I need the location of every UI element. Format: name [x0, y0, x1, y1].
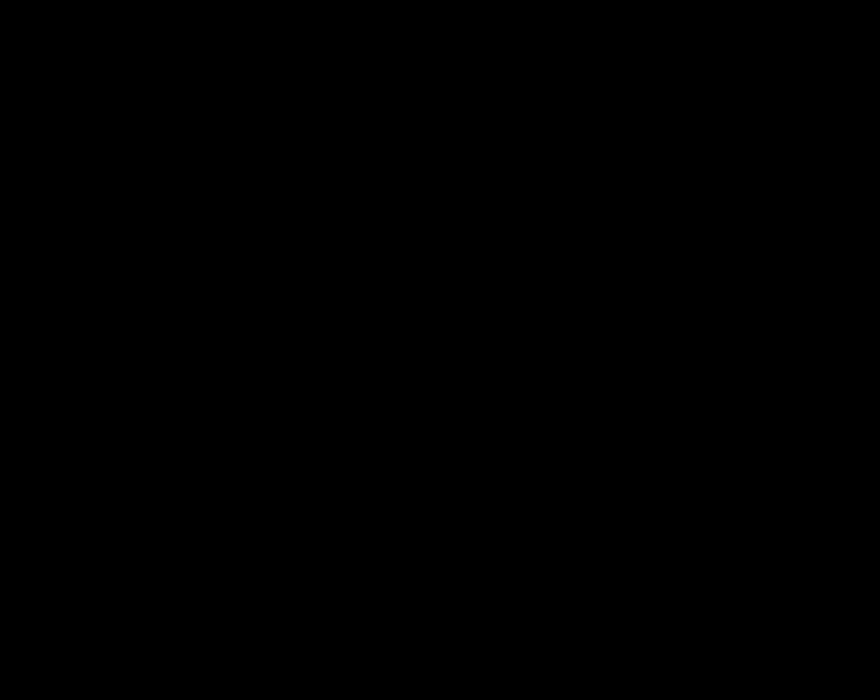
cad-viewport [0, 0, 868, 700]
roof-bracing-plan-svg [0, 0, 868, 700]
